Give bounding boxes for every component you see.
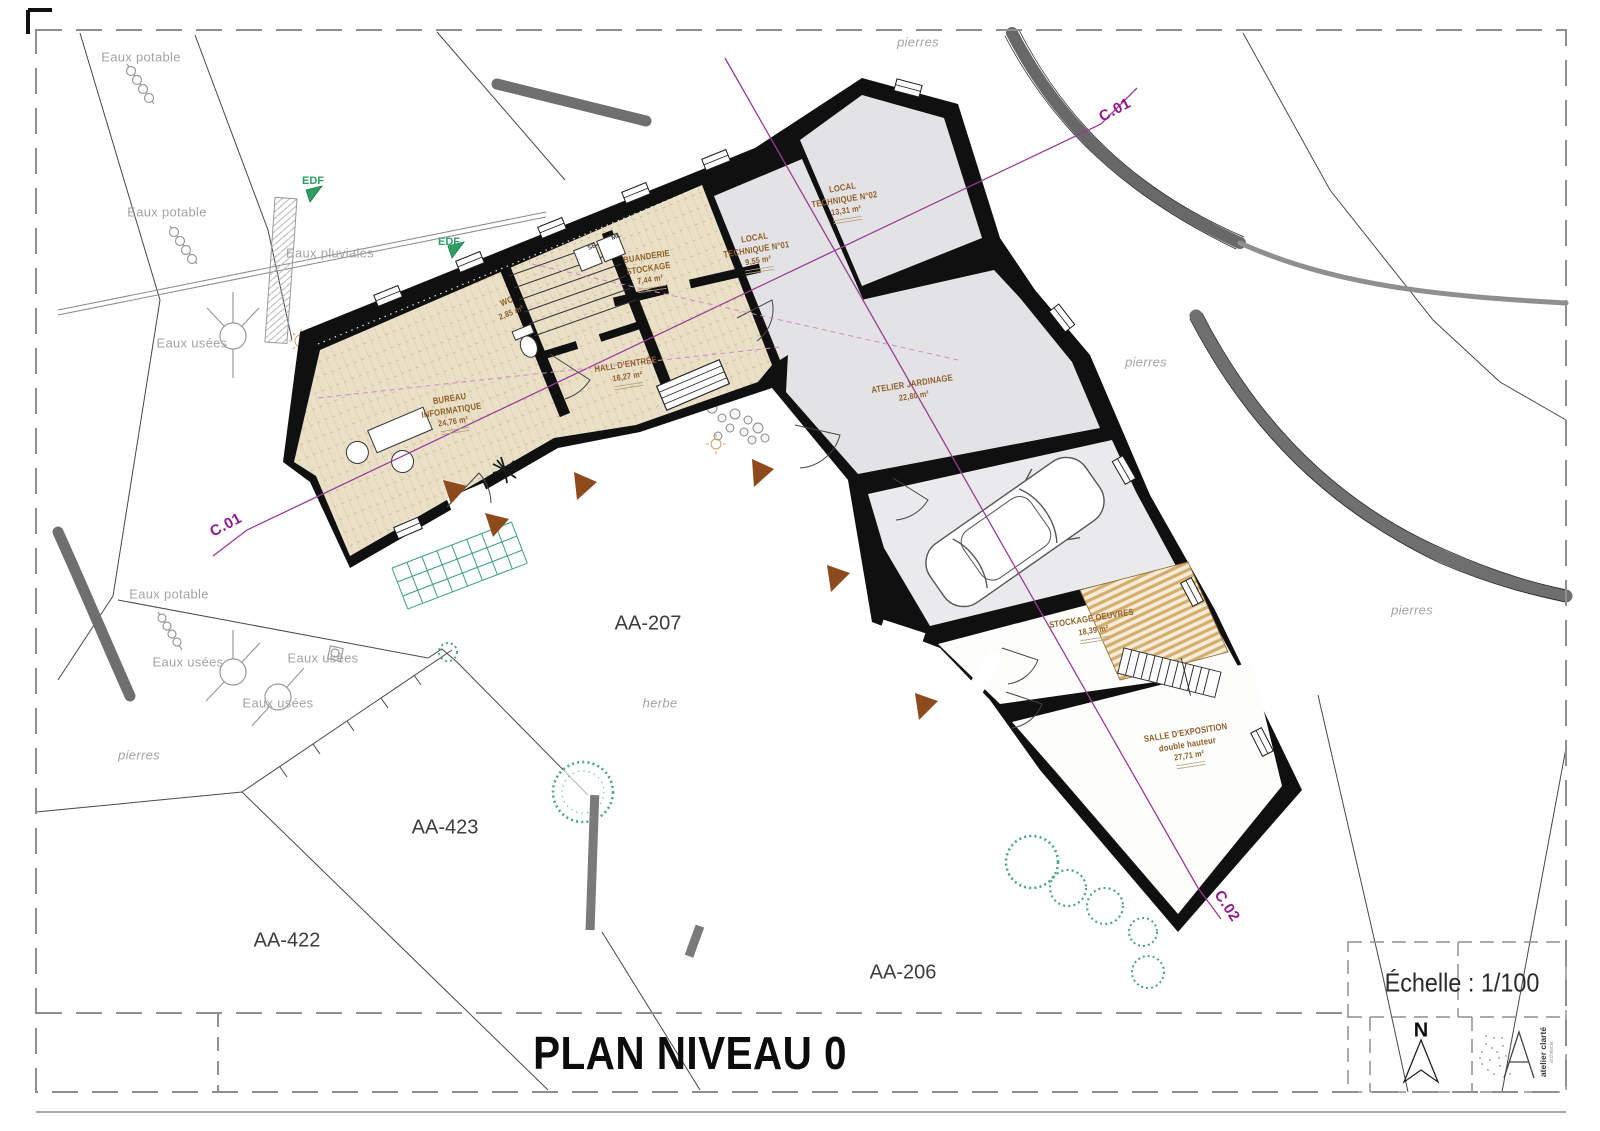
site-label-pierres: pierres <box>1125 355 1167 370</box>
pebble-path <box>707 403 769 444</box>
architect-logo <box>1479 1032 1534 1078</box>
north-label: N <box>1414 1020 1428 1043</box>
parcel-label-aa206: AA-206 <box>870 962 937 985</box>
logo-subtitle: architecte <box>1549 1041 1555 1063</box>
room-label-buanderie: BUANDERIE STOCKAGE 7,44 m² <box>623 248 676 296</box>
scale-label: Échelle : 1/100 <box>1385 968 1540 999</box>
site-label-eaux-potable: Eaux potable <box>127 205 207 220</box>
site-label-herbe: herbe <box>643 696 678 711</box>
floor-plan-canvas <box>0 0 1600 1131</box>
site-label-eaux-usees: Eaux usées <box>157 336 228 351</box>
site-label-pierres: pierres <box>897 35 939 50</box>
parcel-label-aa207: AA-207 <box>615 613 682 636</box>
sheet-title: PLAN NIVEAU 0 <box>533 1026 847 1080</box>
site-label-eaux-potable: Eaux potable <box>101 50 181 65</box>
north-arrow-icon <box>1404 1040 1438 1082</box>
parcel-label-aa423: AA-423 <box>412 817 479 840</box>
plan-sheet: BUREAU INFORMATIQUE 24,76 m² WC 2,85 m² … <box>0 0 1600 1131</box>
site-label-pierres: pierres <box>118 748 160 763</box>
site-label-eaux-usees: Eaux usées <box>243 696 314 711</box>
site-label-eaux-usees: Eaux usées <box>288 651 359 666</box>
site-label-eaux-potable: Eaux potable <box>129 587 209 602</box>
site-label-edf: EDF <box>438 236 460 248</box>
site-label-edf: EDF <box>302 175 324 187</box>
site-label-pierres: pierres <box>1391 603 1433 618</box>
site-label-eaux-usees: Eaux usées <box>153 655 224 670</box>
rainwater-channel <box>265 197 297 343</box>
trellis-grid <box>392 522 527 609</box>
site-label-eaux-pluviales: Eaux pluviales <box>286 246 374 261</box>
logo-name: atelier clarté <box>1538 1027 1548 1077</box>
parcel-label-aa422: AA-422 <box>254 930 321 953</box>
